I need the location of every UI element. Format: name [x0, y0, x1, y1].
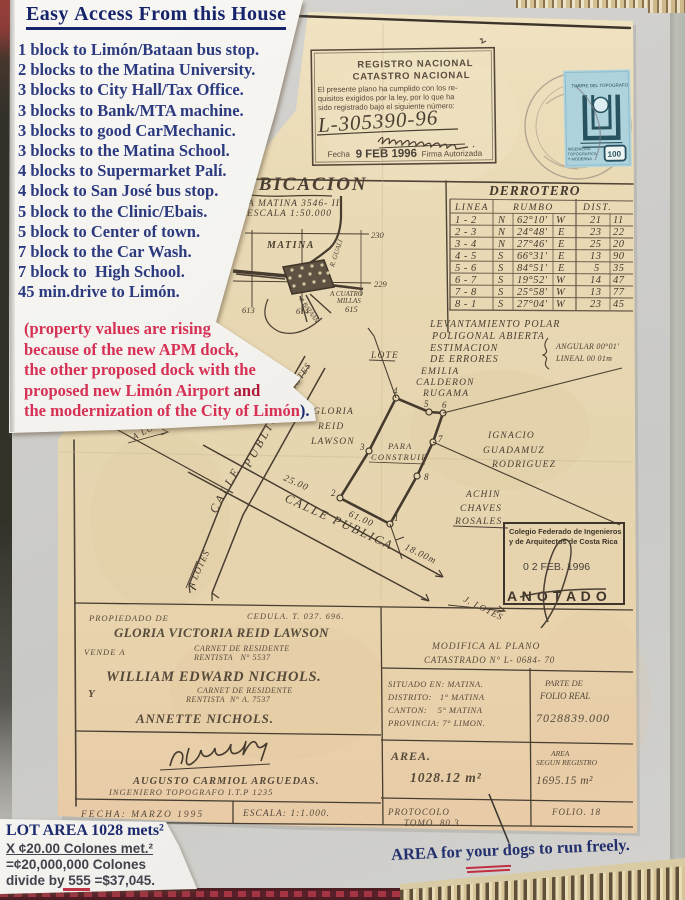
svg-text:8: 8: [424, 472, 429, 482]
svg-text:1: 1: [394, 513, 399, 523]
svg-text:PARTE DE: PARTE DE: [544, 678, 584, 688]
svg-text:SEGUN REGISTRO: SEGUN REGISTRO: [536, 758, 598, 767]
svg-text:RENTISTA N° A. 7537: RENTISTA N° A. 7537: [185, 695, 271, 704]
svg-text:PROTOCOLO: PROTOCOLO: [387, 807, 450, 817]
svg-text:0 2 FEB. 1996: 0 2 FEB. 1996: [523, 561, 590, 573]
svg-text:RENTISTA N° 5537: RENTISTA N° 5537: [193, 653, 271, 662]
svg-text:VENDE A: VENDE A: [84, 647, 126, 657]
svg-text:AUGUSTO CARMIOL ARGUEDAS.: AUGUSTO CARMIOL ARGUEDAS.: [132, 776, 320, 787]
svg-text:SITUADO EN: MATINA.: SITUADO EN: MATINA.: [388, 679, 483, 689]
svg-text:CEDULA. T. 037. 696.: CEDULA. T. 037. 696.: [247, 611, 345, 621]
svg-text:2: 2: [331, 488, 336, 498]
svg-text:Colegio Federado de Ingenieros: Colegio Federado de Ingenieros: [509, 527, 622, 536]
svg-text:ANNETTE NICHOLS.: ANNETTE NICHOLS.: [135, 711, 274, 726]
svg-text:1695.15 m²: 1695.15 m²: [536, 775, 593, 787]
svg-text:WILLIAM EDWARD NICHOLS.: WILLIAM EDWARD NICHOLS.: [106, 669, 321, 685]
svg-text:CHAVES: CHAVES: [460, 504, 502, 514]
svg-text:PROVINCIA: 7° LIMON.: PROVINCIA: 7° LIMON.: [387, 718, 485, 728]
svg-text:ACHIN: ACHIN: [465, 490, 501, 500]
svg-text:CARNET DE RESIDENTE: CARNET DE RESIDENTE: [194, 644, 290, 653]
svg-text:MODIFICA AL PLANO: MODIFICA AL PLANO: [431, 642, 540, 652]
svg-text:GUADAMUZ: GUADAMUZ: [483, 446, 545, 456]
svg-text:PROPIEDADO DE: PROPIEDADO DE: [88, 613, 169, 623]
svg-text:AREA.: AREA.: [390, 749, 431, 763]
svg-text:PARA: PARA: [387, 441, 412, 451]
svg-text:GLORIA VICTORIA REID LAWSON: GLORIA VICTORIA REID LAWSON: [114, 625, 329, 640]
svg-text:RODRIGUEZ: RODRIGUEZ: [491, 460, 556, 470]
svg-text:3: 3: [359, 442, 365, 452]
svg-text:y de Arquitectos de Costa Rica: y de Arquitectos de Costa Rica: [509, 537, 618, 546]
svg-text:CATASTRADO N° L- 0684- 70: CATASTRADO N° L- 0684- 70: [424, 655, 555, 665]
svg-text:ROSALES: ROSALES: [454, 517, 502, 527]
svg-text:CONSTRUIR: CONSTRUIR: [371, 452, 428, 462]
svg-text:7028839.000: 7028839.000: [536, 711, 610, 725]
svg-text:FOLIO REAL: FOLIO REAL: [539, 691, 590, 701]
svg-text:INGENIERO TOPOGRAFO I.T.P 1235: INGENIERO TOPOGRAFO I.T.P 1235: [108, 787, 273, 797]
svg-text:AREA: AREA: [550, 749, 570, 758]
svg-text:CARNET DE RESIDENTE: CARNET DE RESIDENTE: [197, 686, 293, 695]
svg-text:FOLIO. 18: FOLIO. 18: [551, 807, 601, 817]
svg-text:DISTRITO: 1° MATINA: DISTRITO: 1° MATINA: [387, 692, 485, 702]
svg-text:TOMO 80.3: TOMO 80.3: [404, 818, 460, 828]
svg-text:CANTON: 5° MATINA: CANTON: 5° MATINA: [388, 705, 483, 715]
svg-text:1028.12 m²: 1028.12 m²: [410, 770, 482, 785]
